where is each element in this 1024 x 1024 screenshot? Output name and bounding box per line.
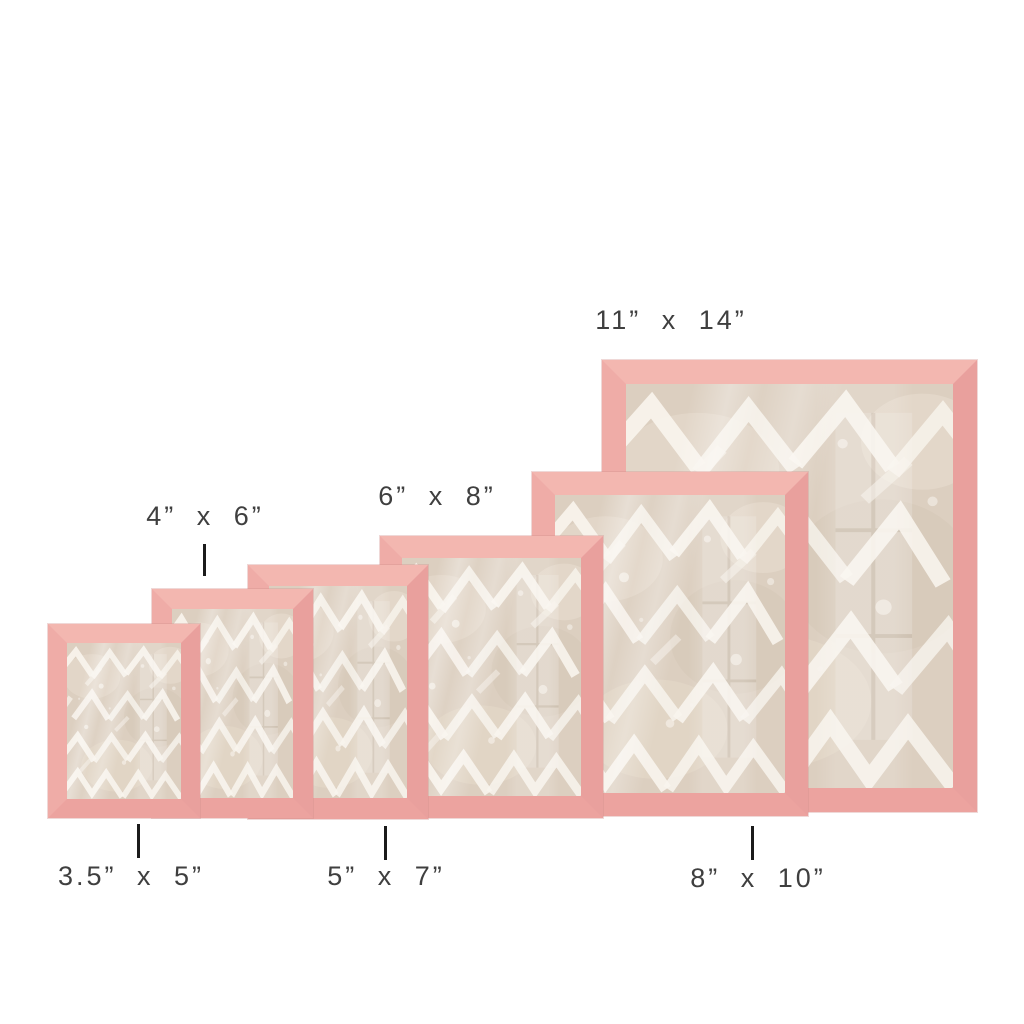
pointer-line-8x10 [751,826,754,860]
size-label-3-5x5: 3.5” x 5” [58,861,204,892]
pointer-line-4x6 [203,544,206,576]
size-label-6x8: 6” x 8” [378,481,496,512]
frame-6x8-artwork [402,558,581,796]
size-label-8x10: 8” x 10” [690,863,826,894]
pointer-line-5x7 [384,826,387,860]
frame-3-5x5-artwork [67,643,181,799]
size-label-11x14: 11” x 14” [595,305,747,336]
frame-3-5x5 [48,624,200,818]
size-label-5x7: 5” x 7” [327,861,445,892]
chevron-artwork [402,558,581,796]
pointer-line-3-5x5 [137,824,140,858]
size-label-4x6: 4” x 6” [146,501,264,532]
chevron-artwork [67,643,181,799]
product-image: 11” x 14” 6” x 8” 4” x 6” 3.5” x 5” 5” x… [0,0,1024,1024]
